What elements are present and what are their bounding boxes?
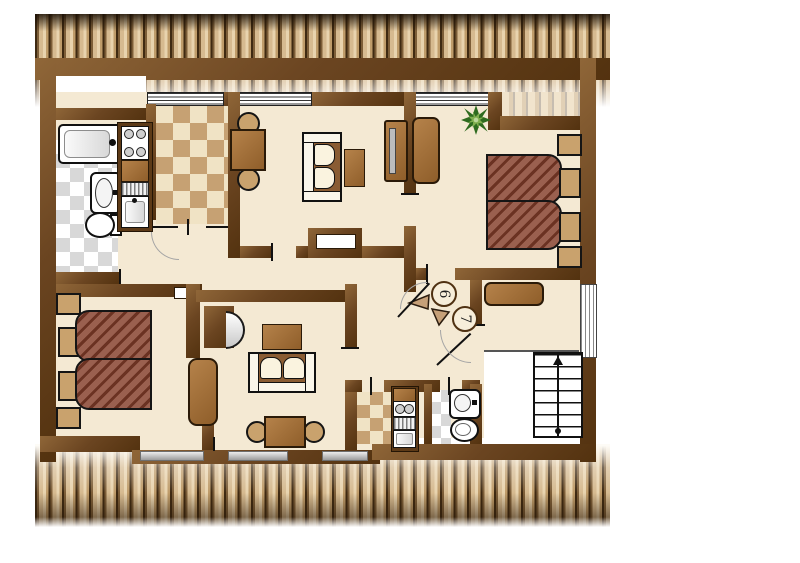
- kitchenette-sink-basin: [396, 433, 413, 445]
- kitchenette-cabinet: [393, 388, 416, 402]
- stairs-up-arrow-icon: [553, 356, 563, 365]
- sofa-armrest: [304, 191, 340, 200]
- sofa-cushion: [283, 357, 305, 379]
- attic-floor-plan: 6 7: [0, 0, 800, 563]
- toilet2-seat-line: [455, 423, 471, 436]
- sofa: [248, 352, 316, 393]
- wash-basin2: [449, 389, 481, 419]
- kitchen-counter: [121, 160, 149, 182]
- toilet-bowl: [85, 212, 115, 238]
- dining-chair: [237, 168, 260, 191]
- kitchenette-floor-tiles: [357, 392, 393, 444]
- wall-living-bedroom-b: [404, 226, 416, 292]
- bathtub-faucet-icon: [109, 139, 116, 146]
- stairs-start-dot: [555, 428, 561, 434]
- wall-bedroom-south-b: [455, 268, 580, 280]
- nightstand: [56, 293, 81, 315]
- wall-bathroom-south: [56, 272, 120, 284]
- room-marker-6-label: 6: [437, 290, 451, 299]
- sofa-armrest: [304, 134, 340, 143]
- stove-burner-icon: [136, 147, 146, 157]
- nightstand: [559, 168, 581, 198]
- wash-basin2-tap-icon: [472, 400, 477, 405]
- top-wall-segment-c: [310, 92, 406, 106]
- door-tick-hall: [187, 219, 189, 235]
- wall-living-south-b: [296, 246, 308, 258]
- wash-basin-bowl: [95, 178, 113, 208]
- outer-wall-bottom-west: [40, 436, 140, 452]
- houseplant-icon: [460, 104, 492, 136]
- bed-mattress: [75, 358, 152, 410]
- tall-cabinet: [188, 358, 218, 426]
- bed-mattress: [75, 310, 152, 362]
- stair-landing: [484, 352, 533, 442]
- sofa-armrest: [305, 354, 314, 391]
- bench: [484, 282, 544, 306]
- door-tick-kitchenette: [370, 377, 372, 395]
- wall-midroom-east: [345, 284, 357, 348]
- dining-table: [230, 129, 266, 171]
- stove: [121, 126, 149, 160]
- nightstand: [559, 212, 581, 242]
- tv-screen: [389, 128, 396, 174]
- door-tick-bedroom-south: [426, 264, 428, 284]
- dining-chair: [303, 421, 325, 443]
- room-marker-7: 7: [452, 306, 478, 332]
- door-tick-bedroom-west: [401, 193, 419, 195]
- wall-midroom-east-low: [345, 392, 357, 450]
- stove-burner-icon: [404, 404, 414, 414]
- wall-living-south-a: [240, 246, 272, 258]
- direction-triangle-icon: [429, 307, 451, 327]
- kitchen-sink-tap-icon: [132, 198, 137, 203]
- window-hallway: [147, 92, 224, 106]
- window-living-room: [236, 92, 312, 106]
- bed-mattress: [486, 200, 562, 250]
- coffee-table: [344, 149, 365, 187]
- bathtub-basin: [64, 130, 110, 158]
- window-stairhall-east: [580, 284, 597, 358]
- staircase: [533, 352, 583, 438]
- sofa-cushion: [314, 167, 335, 189]
- sofa-cushion: [260, 357, 282, 379]
- roof-slope-bedroom-corner: [500, 92, 580, 118]
- outer-wall-left: [40, 58, 56, 462]
- hallway-floor-tiles: [156, 106, 228, 224]
- side-table: [262, 324, 302, 350]
- room-marker-6: 6: [431, 281, 457, 307]
- toilet2-bowl: [450, 418, 479, 442]
- kitchen-sink-basin: [125, 201, 145, 223]
- bathroom2-floor-tiles: [429, 390, 451, 446]
- window-sill-midroom-east: [322, 451, 368, 461]
- wardrobe-bedroom: [412, 117, 440, 184]
- window-sill-midroom-west: [228, 451, 288, 461]
- wash-basin2-bowl: [454, 394, 471, 412]
- window-sill-bedroom2: [140, 451, 204, 461]
- bedroom-step-wall-h: [500, 116, 580, 130]
- dining-table: [264, 416, 306, 448]
- wall-kitchen-bath2: [424, 384, 432, 444]
- top-wall-segment-a: [56, 108, 146, 120]
- kitchen-drainboard: [121, 182, 149, 196]
- kitchenette-stove: [393, 401, 416, 417]
- room-marker-7-label: 7: [458, 315, 472, 324]
- stove-burner-icon: [136, 129, 146, 139]
- tv-sideboard: [384, 120, 408, 182]
- nightstand: [56, 407, 81, 429]
- wall-midroom-north: [196, 290, 345, 302]
- sofa-cushion: [314, 144, 335, 166]
- door-tick-living: [271, 243, 273, 261]
- nightstand: [557, 246, 582, 268]
- kitchenette-drainboard: [393, 417, 416, 430]
- staircase-center-line: [557, 354, 559, 436]
- door-tick-midroom: [341, 347, 359, 349]
- wall-kitchenette-north-a: [345, 380, 362, 392]
- wall-living-south-c: [362, 246, 406, 258]
- kitchenette-sink: [393, 430, 416, 448]
- wall-cabinet-inset: [316, 234, 356, 249]
- stove-burner-icon: [124, 147, 134, 157]
- stove-burner-icon: [124, 129, 134, 139]
- nightstand: [557, 134, 582, 156]
- sofa: [302, 132, 342, 202]
- kitchen-sink: [121, 196, 149, 228]
- bathtub: [58, 124, 122, 164]
- bed-mattress: [486, 154, 562, 204]
- door-tick-bedroom2: [213, 437, 215, 451]
- sofa-armrest: [250, 354, 259, 391]
